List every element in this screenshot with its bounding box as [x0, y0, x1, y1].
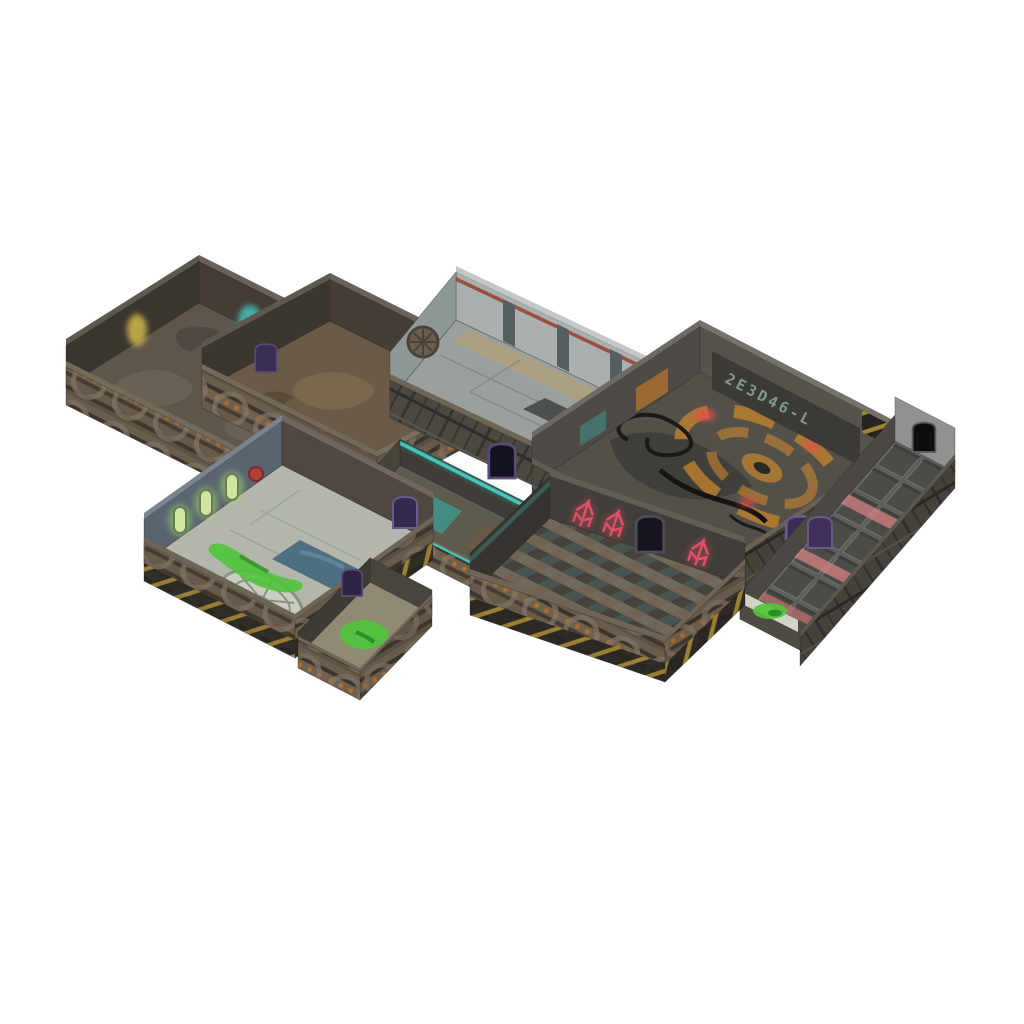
corridor-e-door-icon: [808, 517, 832, 548]
tank-icon: [200, 490, 212, 516]
red-gauge-icon: [249, 467, 263, 481]
tank-icon: [226, 474, 238, 500]
room-a-yellow-glow: [127, 314, 147, 346]
room-d-red-glow-3: [739, 497, 757, 507]
annex-door-icon: [342, 570, 362, 596]
room-d-red-glow-1: [695, 409, 715, 421]
room-b-door-2-icon: [255, 344, 277, 372]
terrain-render: Sci-fi modular dungeon terrain set (isom…: [0, 0, 1024, 1024]
tank-icon: [174, 507, 186, 533]
room-g-door-icon: [393, 497, 417, 528]
corridor-e-doorway-icon: [913, 423, 936, 452]
room-c-doorway-icon: [489, 444, 515, 478]
room-h-doorway-icon: [636, 516, 664, 552]
corridor-e-slime-dark: [768, 610, 782, 617]
